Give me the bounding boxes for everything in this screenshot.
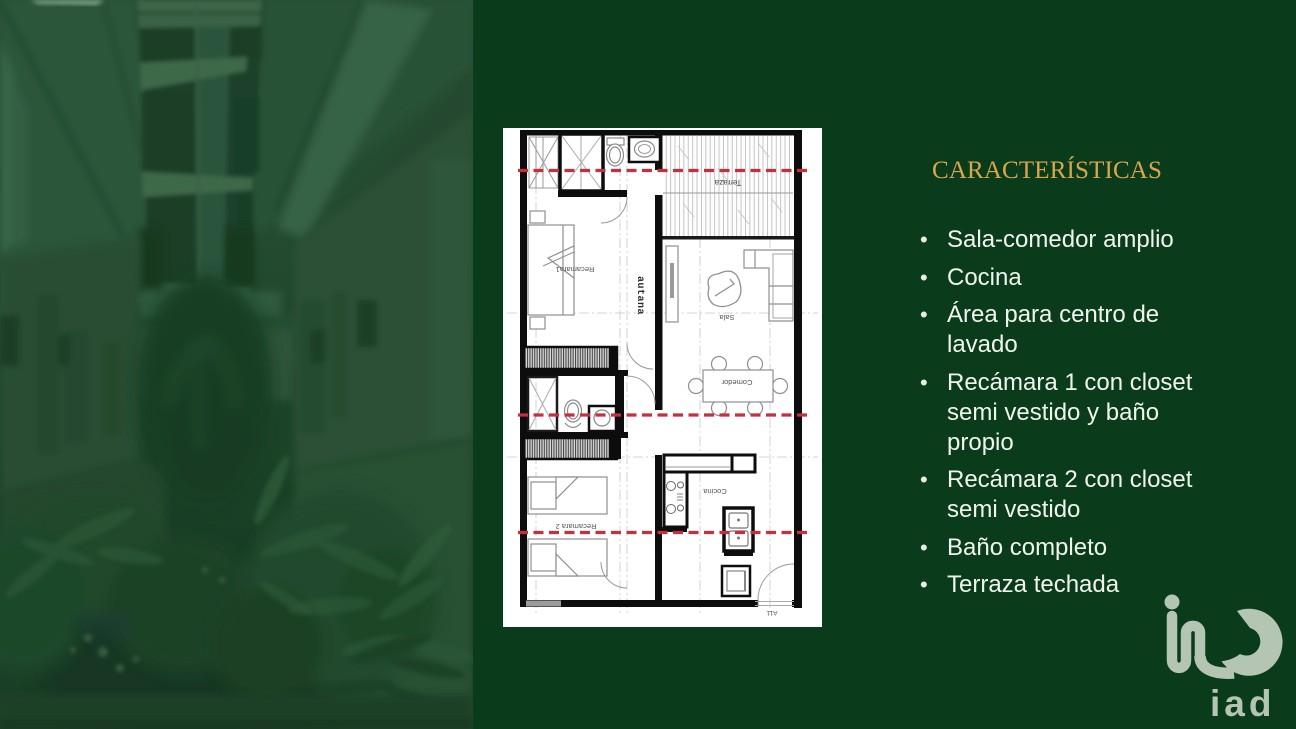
svg-text:Comedor: Comedor — [721, 378, 752, 387]
svg-text:iad: iad — [1210, 683, 1275, 724]
svg-text:Cocina: Cocina — [703, 487, 727, 496]
svg-text:Recamara 2: Recamara 2 — [556, 522, 597, 531]
svg-text:Recamara1: Recamara1 — [556, 265, 595, 274]
svg-text:Sala: Sala — [719, 313, 735, 322]
svg-text:autana: autana — [634, 276, 645, 315]
svg-text:A11: A11 — [766, 609, 777, 616]
svg-text:Terraza: Terraza — [714, 178, 741, 187]
